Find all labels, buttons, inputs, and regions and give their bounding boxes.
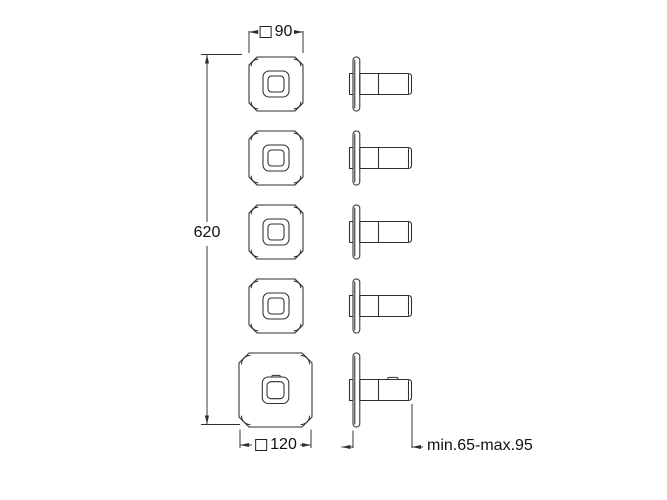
front-view-valve-1 xyxy=(249,57,303,111)
front-view-thermostat xyxy=(239,353,312,427)
dim-label-height-620: 620 xyxy=(193,224,222,242)
technical-drawing-page: 90 620 120 min.65-max.95 xyxy=(0,0,667,500)
front-view-valve-2 xyxy=(249,131,303,185)
dim-value-width-90: 90 xyxy=(275,23,293,41)
side-view-thermostat xyxy=(350,353,412,427)
dim-value-height-620: 620 xyxy=(194,224,221,242)
side-view-valve-2 xyxy=(350,131,412,185)
dim-label-width-120: 120 xyxy=(254,436,298,454)
square-symbol-icon xyxy=(255,439,267,451)
dim-label-depth-range: min.65-max.95 xyxy=(426,437,534,455)
side-view-valve-1 xyxy=(350,57,412,111)
side-view-valve-3 xyxy=(350,205,412,259)
front-view-valve-3 xyxy=(249,205,303,259)
dim-value-depth-range: min.65-max.95 xyxy=(427,437,533,455)
dim-value-width-120: 120 xyxy=(270,436,297,454)
dim-label-width-90: 90 xyxy=(259,23,294,41)
side-view-valve-4 xyxy=(350,279,412,333)
square-symbol-icon xyxy=(260,26,272,38)
front-view-valve-4 xyxy=(249,279,303,333)
technical-drawing-canvas xyxy=(0,0,667,500)
